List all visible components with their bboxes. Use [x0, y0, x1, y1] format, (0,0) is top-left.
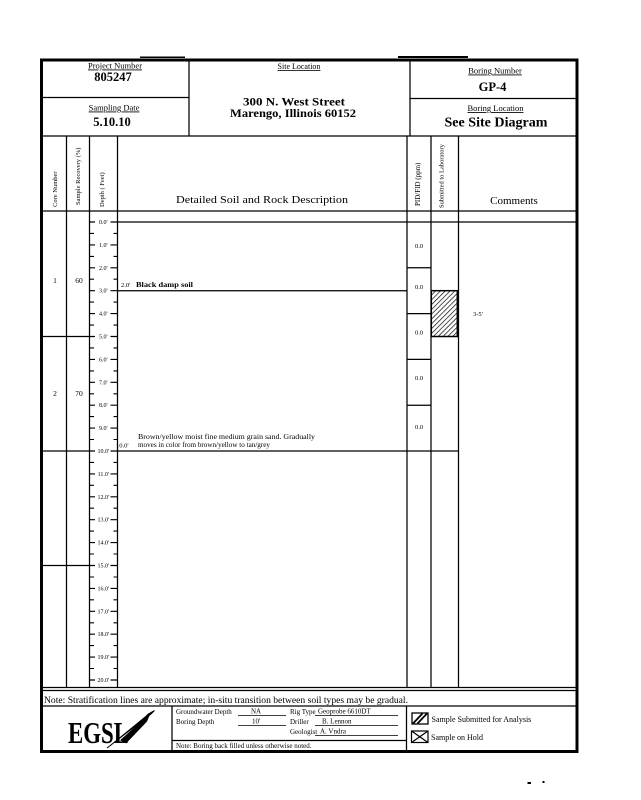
svg-text:2: 2 — [53, 389, 57, 398]
svg-text:10.0': 10.0' — [116, 443, 129, 450]
svg-text:0.0: 0.0 — [415, 284, 423, 291]
svg-text:NA: NA — [251, 708, 261, 716]
svg-text:3-5': 3-5' — [473, 311, 483, 318]
svg-text:Site Location: Site Location — [278, 62, 321, 71]
svg-text:70: 70 — [75, 389, 83, 398]
svg-text:6.0': 6.0' — [99, 357, 108, 363]
svg-text:18.0': 18.0' — [98, 632, 110, 638]
svg-text:Depth ( Feet): Depth ( Feet) — [99, 172, 106, 207]
svg-text:16.0': 16.0' — [98, 586, 110, 592]
svg-text:moves in color from brown/yell: moves in color from brown/yellow to tan/… — [138, 440, 270, 449]
svg-text:A. Vndra: A. Vndra — [320, 728, 347, 736]
svg-text:5.0': 5.0' — [99, 335, 108, 341]
svg-text:2.0': 2.0' — [121, 282, 130, 289]
svg-text:Sample on Hold: Sample on Hold — [431, 733, 483, 742]
svg-text:Note: Boring back filled unles: Note: Boring back filled unless otherwis… — [176, 742, 312, 750]
svg-text:805247: 805247 — [94, 70, 132, 84]
svg-text:Geologist: Geologist — [290, 728, 317, 736]
svg-text:Submitted to Laboratory: Submitted to Laboratory — [439, 143, 446, 208]
svg-text:Core Number: Core Number — [52, 171, 59, 207]
svg-text:Boring Depth: Boring Depth — [176, 718, 215, 726]
svg-text:13.0': 13.0' — [98, 518, 110, 524]
svg-text:8.0': 8.0' — [99, 403, 108, 409]
svg-text:60: 60 — [75, 276, 83, 285]
svg-text:14.0': 14.0' — [98, 541, 110, 547]
svg-text:B. Lennon: B. Lennon — [322, 718, 352, 726]
svg-text:0.0: 0.0 — [415, 424, 423, 431]
svg-text:Boring Location: Boring Location — [468, 103, 525, 113]
svg-text:Rig Type: Rig Type — [290, 708, 316, 716]
svg-text:Detailed Soil and Rock Descrip: Detailed Soil and Rock Description — [176, 194, 349, 206]
svg-text:0.0': 0.0' — [99, 220, 108, 226]
svg-text:Project Number: Project Number — [88, 61, 142, 71]
svg-text:Sample Submitted for Analysis: Sample Submitted for Analysis — [432, 715, 532, 724]
svg-text:PID/FID (ppm): PID/FID (ppm) — [414, 162, 422, 206]
svg-text:Boring Number: Boring Number — [468, 66, 522, 76]
svg-text:17.0': 17.0' — [98, 609, 110, 615]
svg-text:3.0': 3.0' — [99, 289, 108, 295]
svg-text:Marengo, Illinois 60152: Marengo, Illinois 60152 — [230, 108, 356, 120]
svg-text:0.0: 0.0 — [415, 375, 423, 382]
svg-text:9.0': 9.0' — [99, 426, 108, 432]
svg-text:12.0': 12.0' — [98, 495, 110, 501]
svg-text:10.0': 10.0' — [98, 449, 110, 455]
svg-text:0.0: 0.0 — [415, 330, 423, 337]
svg-text:See Site Diagram: See Site Diagram — [445, 116, 548, 131]
svg-text:0.0: 0.0 — [415, 243, 423, 250]
svg-text:GP-4: GP-4 — [479, 80, 508, 94]
svg-text:Driller: Driller — [290, 718, 309, 726]
svg-text:Groundwater Depth: Groundwater Depth — [176, 708, 232, 716]
svg-text:Black damp soil: Black damp soil — [136, 280, 193, 289]
svg-text:300 N. West Street: 300 N. West Street — [243, 97, 345, 109]
svg-text:2.0': 2.0' — [99, 266, 108, 272]
svg-text:Sampling Date: Sampling Date — [89, 103, 140, 113]
svg-text:Geoprobe 6610DT: Geoprobe 6610DT — [318, 708, 371, 716]
svg-text:1.0': 1.0' — [99, 243, 108, 249]
svg-text:5.10.10: 5.10.10 — [93, 115, 131, 129]
svg-text:7.0': 7.0' — [99, 380, 108, 386]
svg-text:Sample Recovery (%): Sample Recovery (%) — [75, 148, 82, 205]
svg-text:10': 10' — [252, 718, 260, 726]
svg-text:Comments: Comments — [490, 195, 538, 207]
svg-text:20.0': 20.0' — [98, 678, 110, 684]
svg-text:15.0': 15.0' — [98, 564, 110, 570]
svg-text:EGSL: EGSL — [68, 715, 129, 750]
svg-text:11.0': 11.0' — [98, 472, 109, 478]
svg-text:1: 1 — [53, 276, 57, 285]
svg-text:4.0': 4.0' — [99, 312, 108, 318]
svg-text:Note: Stratification lines ar: Note: Stratification lines are approxima… — [44, 695, 408, 706]
svg-text:19.0': 19.0' — [98, 655, 110, 661]
